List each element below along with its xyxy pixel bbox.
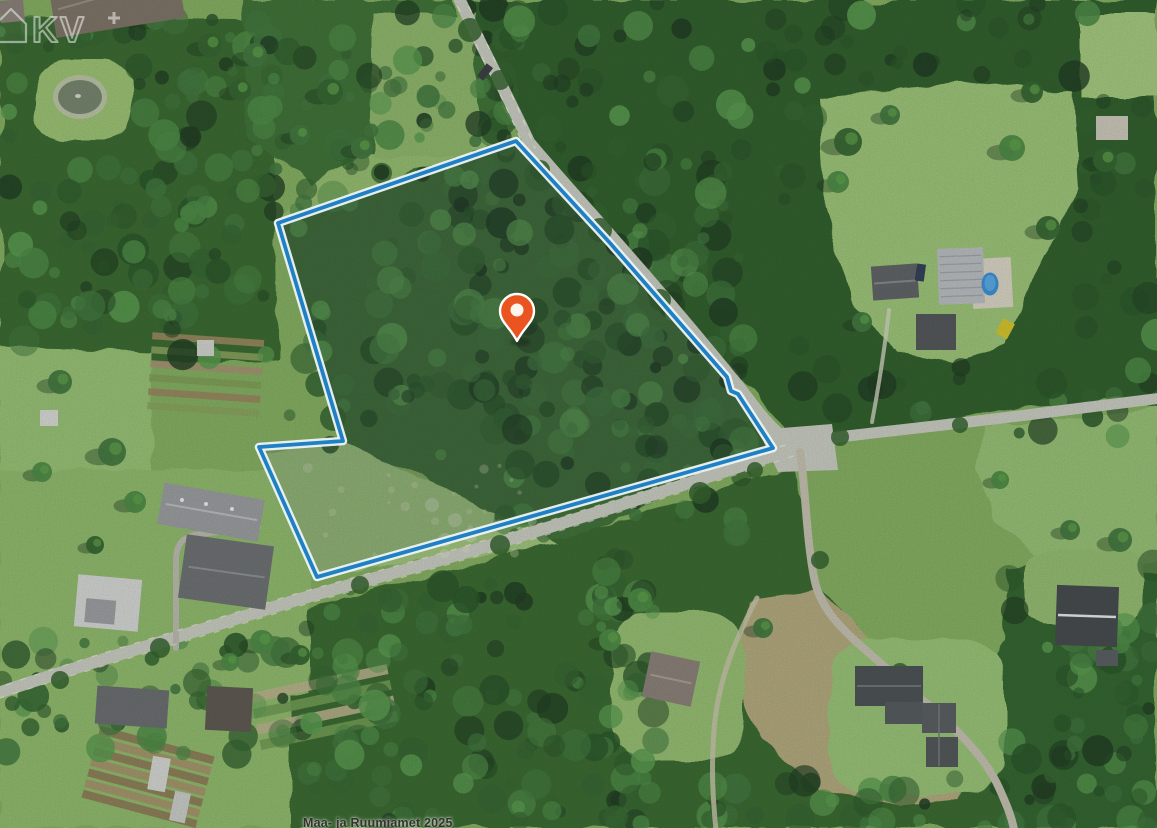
map-attribution: Maa- ja Ruumiamet 2025: [303, 816, 503, 828]
aerial-map[interactable]: KV Maa- ja Ruumiamet 2025: [0, 0, 1157, 828]
